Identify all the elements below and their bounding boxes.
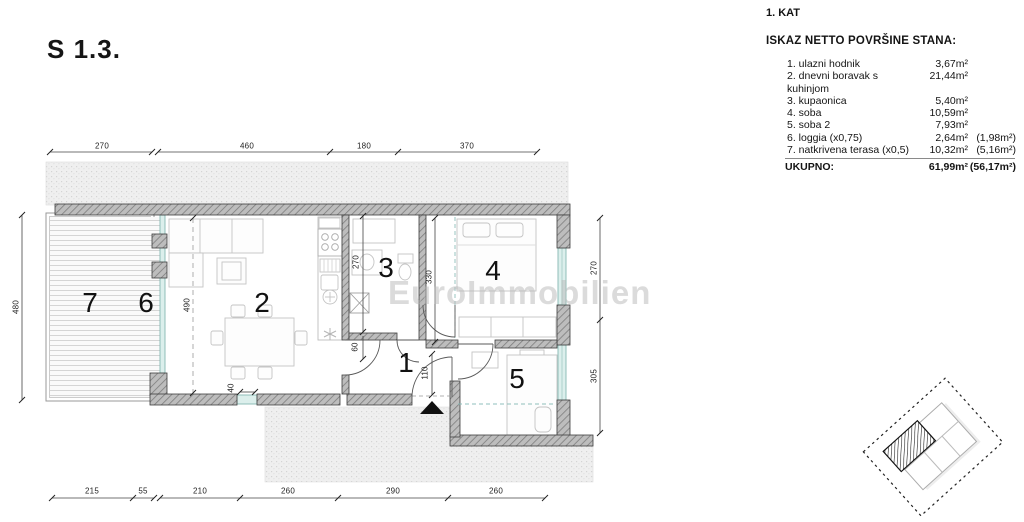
- area-row: 4. soba 10,59m²: [766, 107, 1016, 119]
- dim-int-270: 270: [352, 255, 361, 269]
- dim-bottom-1: 215: [85, 487, 99, 496]
- room-label-terrace: 7: [82, 287, 98, 319]
- area-value: 3,67m²: [910, 58, 968, 70]
- area-row: 1. ulazni hodnik 3,67m²: [766, 58, 1016, 70]
- room-label-hall: 1: [398, 347, 414, 379]
- dim-bottom-6: 260: [489, 487, 503, 496]
- dim-left-1: 480: [12, 300, 21, 314]
- area-row: 2. dnevni boravak s kuhinjom 21,44m²: [766, 70, 1016, 95]
- area-row: 3. kupaonica 5,40m²: [766, 95, 1016, 107]
- dim-int-330: 330: [425, 270, 434, 284]
- area-label: 1. ulazni hodnik: [787, 58, 910, 70]
- area-extra: (1,98m²): [968, 132, 1016, 144]
- total-label: UKUPNO:: [785, 161, 910, 173]
- area-value: 21,44m²: [910, 70, 968, 82]
- keyplan: [863, 378, 1002, 516]
- area-label: 3. kupaonica: [787, 95, 910, 107]
- floorplan-page: S 1.3. EuroImmobilien 1 2 3 4 5 6 7 270 …: [0, 0, 1024, 522]
- legend-divider: [785, 158, 1015, 159]
- legend-heading: ISKAZ NETTO POVRŠINE STANA:: [766, 35, 1016, 47]
- area-label: 5. soba 2: [787, 119, 910, 131]
- dim-bottom-4: 260: [281, 487, 295, 496]
- room-label-bath: 3: [378, 252, 394, 284]
- floor-label: 1. KAT: [766, 7, 1016, 19]
- dim-int-40: 40: [227, 383, 236, 392]
- dim-right-2: 305: [590, 369, 599, 383]
- area-label: 6. loggia (x0,75): [787, 132, 910, 144]
- dim-top-3: 180: [357, 142, 371, 151]
- room-label-loggia: 6: [138, 287, 154, 319]
- room-label-living: 2: [254, 287, 270, 319]
- dim-right-1: 270: [590, 261, 599, 275]
- legend-panel: 1. KAT ISKAZ NETTO POVRŠINE STANA: 1. ul…: [766, 7, 1016, 174]
- area-label: 2. dnevni boravak s kuhinjom: [787, 70, 910, 95]
- dim-top-4: 370: [460, 142, 474, 151]
- dim-top-2: 460: [240, 142, 254, 151]
- area-row: 6. loggia (x0,75) 2,64m² (1,98m²): [766, 132, 1016, 144]
- dim-top-1: 270: [95, 142, 109, 151]
- area-row: 7. natkrivena terasa (x0,5) 10,32m² (5,1…: [766, 144, 1016, 156]
- room-label-bedroom: 4: [485, 255, 501, 287]
- total-row: UKUPNO: 61,99m² (56,17m²): [766, 161, 1016, 173]
- dim-int-60: 60: [351, 342, 360, 351]
- total-extra: (56,17m²): [968, 161, 1016, 173]
- area-label: 4. soba: [787, 107, 910, 119]
- dim-bottom-3: 210: [193, 487, 207, 496]
- dim-int-490: 490: [183, 298, 192, 312]
- area-label: 7. natkrivena terasa (x0,5): [787, 144, 910, 156]
- area-value: 10,59m²: [910, 107, 968, 119]
- area-value: 5,40m²: [910, 95, 968, 107]
- plan-title: S 1.3.: [47, 34, 121, 65]
- area-row: 5. soba 2 7,93m²: [766, 119, 1016, 131]
- dim-int-110: 110: [421, 366, 430, 379]
- total-value: 61,99m²: [910, 161, 968, 173]
- dim-bottom-2: 55: [138, 487, 147, 496]
- area-value: 2,64m²: [910, 132, 968, 144]
- room-label-bedroom2: 5: [509, 363, 525, 395]
- dim-bottom-5: 290: [386, 487, 400, 496]
- area-value: 10,32m²: [910, 144, 968, 156]
- freezer-symbol-icon: [324, 328, 336, 340]
- area-value: 7,93m²: [910, 119, 968, 131]
- area-extra: (5,16m²): [968, 144, 1016, 156]
